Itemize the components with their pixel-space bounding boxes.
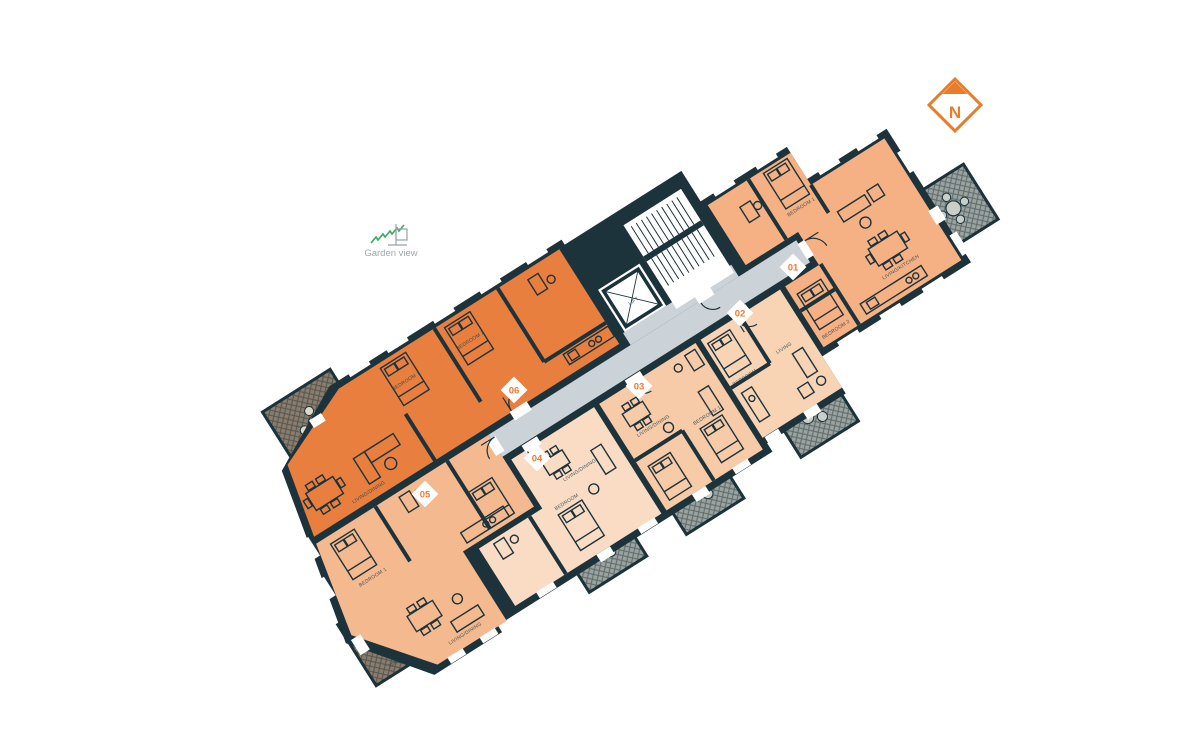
unit-marker-label: 02 [735,309,746,320]
unit-marker-label: 06 [509,386,520,397]
unit-marker-label: 01 [788,263,799,274]
unit-marker-label: 03 [634,382,645,393]
floorplan-page: Garden view N TERRACE TERRACE [0,0,1200,733]
floorplan-canvas: Garden view N TERRACE TERRACE [0,0,1200,733]
garden-view-label: Garden view [364,248,417,259]
unit-marker-label: 04 [532,454,543,465]
north-label: N [949,103,961,122]
unit-marker-label: 05 [420,490,431,501]
